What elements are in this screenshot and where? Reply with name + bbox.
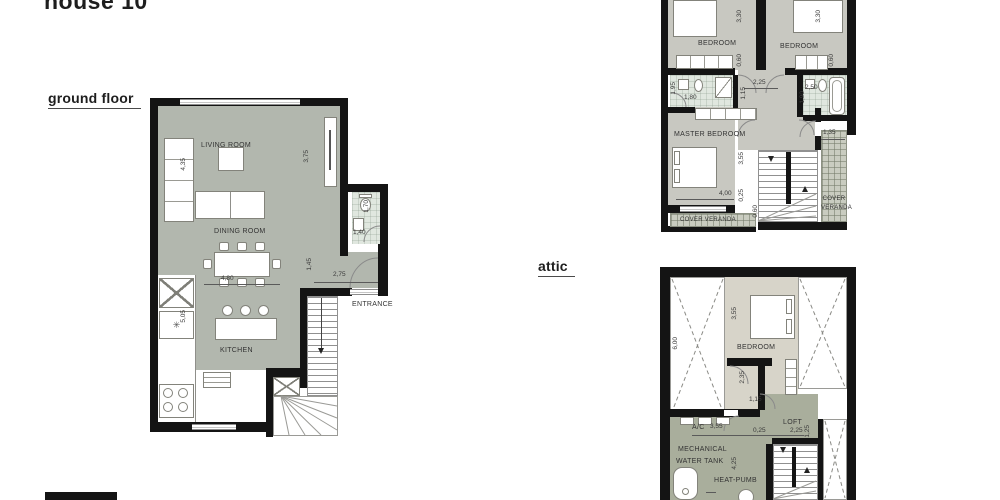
tv-icon [329,130,331,170]
wardrobe [695,108,757,120]
stair-direction-line [321,298,322,350]
kitchen-appliance: ✳ [159,311,194,339]
attic-label: attic [538,258,575,277]
window [680,206,726,212]
bedroom-door-arc [766,75,784,93]
wall [378,244,388,296]
dining-chair [272,259,281,269]
coffee-table [218,147,244,171]
heat-pump-unit [738,489,754,500]
stair-arrow [780,447,786,453]
void-shaft [273,377,300,396]
veranda-door-arc [800,121,816,137]
washbasin [678,79,689,90]
pillow [674,151,680,165]
burner [178,402,188,412]
burner [163,402,173,412]
wall [661,0,668,226]
wardrobe [795,55,828,70]
dim-line [314,282,378,283]
stair-arrow [318,348,324,354]
stair-arrow [768,156,774,162]
wall [815,108,821,122]
wall [266,377,273,437]
dim: 2,25 [790,428,803,435]
window [192,424,236,430]
shower [715,77,732,98]
cover-veranda-bottom-label: COVER VERANDA [680,217,736,223]
divider [230,192,231,218]
kitchen-island [215,318,277,340]
ac-label: A/C [692,424,705,431]
wall [340,98,348,256]
loft-door-arc [760,394,775,409]
pillow [674,169,680,183]
wardrobe [676,55,733,69]
dim-line [676,199,734,200]
dim: 1,15 [749,397,762,404]
stair-arrow [802,186,808,192]
living-room-label: LIVING ROOM [201,142,251,149]
floor-plan-sheet: house 10 ground floor attic [0,0,1000,500]
roof-void-x [798,277,847,389]
bathtub-inner [832,80,842,112]
dim: 4,00 [719,191,732,198]
dim: 6,00 [673,337,680,350]
sofa [164,138,194,222]
dim: 1,90 [800,91,807,104]
dim: 2,75 [333,272,346,279]
dim: 2,25 [753,80,766,87]
dining-chair [237,278,247,287]
bedroom-right-label: BEDROOM [780,43,818,50]
dining-chair [203,259,212,269]
cover-veranda-right-label-2: VERANDA [821,205,847,211]
water-tank-port [682,488,689,495]
wall [668,68,735,75]
burner [178,388,188,398]
bar-stool [222,305,233,316]
entrance-label: ENTRANCE [352,301,393,308]
dim: 2,35 [740,371,747,384]
first-floor-plan: BEDROOM BEDROOM MASTER BEDROOM COVER VER… [658,0,856,232]
bar-stool [258,305,269,316]
roof-void-x [823,419,847,500]
dim: 1,25 [805,425,812,438]
dim: 0,60 [753,205,760,218]
toilet [818,79,827,92]
kitchen-label: KITCHEN [220,347,253,354]
entrance-door-threshold [350,289,378,295]
wall [266,368,307,377]
kitchen-sink [159,278,194,308]
bar-stool [240,305,251,316]
heat-pump-label: HEAT-PUMB [714,477,757,484]
stair-winder-fan [773,477,818,500]
dining-chair [219,242,229,251]
wall [300,288,352,296]
dim: 3,30 [737,10,744,23]
sink-unit [203,372,231,388]
dining-table [214,252,270,277]
dim: 1,70 [364,200,371,213]
dim-line [744,88,778,89]
mechanical-label-1: MECHANICAL [678,446,727,453]
wall [756,0,766,70]
attic-plan: BEDROOM LOFT A/C MECHANICAL WATER TANK H… [658,267,856,500]
dim: 4,80 [221,276,234,283]
leader-line [706,492,716,493]
pillow [786,299,792,314]
dim: 5,05 [181,310,188,323]
dim: 1,45 [307,258,314,271]
master-bedroom-label: MASTER BEDROOM [674,131,745,138]
dim: 3,55 [710,424,723,431]
dim-line [821,139,845,140]
dim: 1,95 [671,82,678,95]
wall [150,98,158,432]
dim: 3,55 [732,307,739,320]
bedroom-left-label: BEDROOM [698,40,736,47]
sheet-title: house 10 [44,0,148,15]
wall [670,409,760,417]
stair-winder-fan [758,192,818,222]
attic-bedroom-label: BEDROOM [737,344,775,351]
wall [727,358,772,366]
toilet [694,79,703,92]
stair-winder-fan [273,396,338,436]
wall [660,267,670,500]
water-tank [673,467,698,500]
wall [818,419,823,500]
dim: 1,35 [823,130,836,137]
dining-chair [255,278,265,287]
dim: 0,25 [753,428,766,435]
dim: 3,30 [816,10,823,23]
wall [847,0,856,135]
burner [163,388,173,398]
wall [758,222,847,230]
wardrobe [785,359,797,395]
ground-floor-plan: ✳ LIVING ROOM DINING ROOM KITCHEN ENTRAN… [148,98,392,439]
window [180,99,300,105]
wall [668,107,695,113]
dining-room-label: DINING ROOM [214,228,266,235]
dim: 4,25 [732,457,739,470]
dim: 4,35 [181,158,188,171]
wall [660,267,854,277]
stairs [307,296,338,396]
dim: 1,15 [741,87,748,100]
cut-off-bar [45,492,117,500]
entrance-door-arc [350,258,378,288]
wall [766,444,773,500]
dim: 0,60 [737,54,744,67]
dim: 0,60 [829,54,836,67]
dim-line [204,284,280,285]
stair-arrow [804,467,810,473]
dining-chair [255,242,265,251]
cover-veranda-right-label-1: COVER [821,196,847,202]
dim-line [692,435,804,436]
wall [847,267,856,500]
dining-chair [237,242,247,251]
wc-door-arc [364,226,380,242]
bed [673,0,717,37]
dim: 0,25 [739,189,746,202]
pillow [786,319,792,334]
loft-label: LOFT [783,419,802,426]
dim: 3,75 [304,150,311,163]
dim: 1,80 [684,95,697,102]
dim: 3,55 [739,152,746,165]
wall [380,184,388,246]
dim: 1,40 [353,230,366,237]
dim: 2,50 [805,85,818,92]
ground-floor-label: ground floor [48,90,141,109]
mechanical-label-2: WATER TANK [676,458,723,465]
